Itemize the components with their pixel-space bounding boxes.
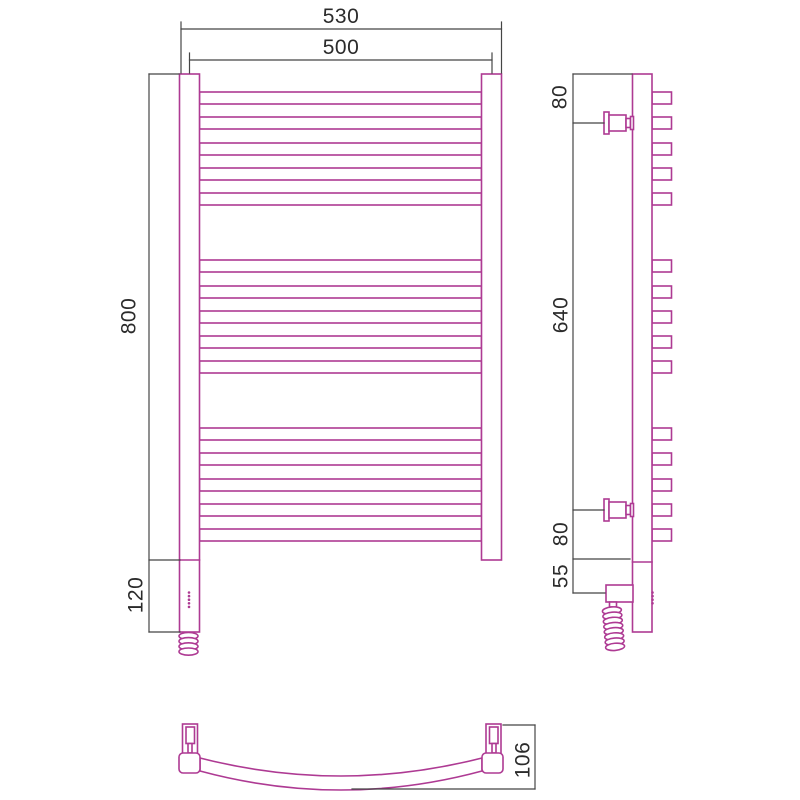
tube-rung xyxy=(200,193,482,205)
electric-unit-box xyxy=(606,585,633,602)
bracket-stem xyxy=(492,744,496,754)
tube-rung xyxy=(200,286,482,298)
bottom-right-bracket xyxy=(486,724,501,754)
led-dot xyxy=(651,595,654,598)
dim-label-500: 500 xyxy=(323,36,360,59)
side-post xyxy=(633,74,653,632)
bracket-barrel xyxy=(490,727,499,744)
technical-drawing: 530 500 800 120 xyxy=(0,0,800,800)
tube-stub xyxy=(652,311,672,323)
dim-label-55: 55 xyxy=(549,564,572,588)
tube-rung xyxy=(200,361,482,373)
tube-rung xyxy=(200,453,482,465)
tube-stub xyxy=(652,143,672,155)
dim-label-80-top: 80 xyxy=(548,85,571,109)
front-view: 530 500 800 120 xyxy=(117,5,501,655)
wall-bracket xyxy=(604,499,634,521)
power-cable-coil-front xyxy=(179,632,198,655)
coil-loop xyxy=(179,648,198,655)
drawing-canvas: 530 500 800 120 xyxy=(0,0,800,800)
side-view: 80 640 80 55 xyxy=(548,74,671,651)
tube-rung xyxy=(200,168,482,180)
tube-stub xyxy=(652,453,672,465)
dim-label-106: 106 xyxy=(511,742,534,779)
tube-stub xyxy=(652,193,672,205)
power-cable-coil-side xyxy=(602,606,625,651)
tube-stub xyxy=(652,529,672,541)
tube-stub xyxy=(652,168,672,180)
bracket-collar xyxy=(631,117,634,130)
front-right-post xyxy=(482,74,502,560)
tube-rung xyxy=(200,504,482,516)
tube-rung xyxy=(200,336,482,348)
tube-rung xyxy=(200,260,482,272)
front-left-post xyxy=(180,74,200,632)
curved-tube-arc xyxy=(200,758,482,790)
bottom-left-bracket xyxy=(183,724,198,754)
dim-label-80-bottom: 80 xyxy=(549,522,572,546)
tube-stub xyxy=(652,504,672,516)
tube-stub xyxy=(652,336,672,348)
tube-rung xyxy=(200,428,482,440)
led-dot xyxy=(651,602,654,605)
tube-stub xyxy=(652,92,672,104)
tube-rung xyxy=(200,479,482,491)
led-dot xyxy=(651,598,654,601)
tube-rung xyxy=(200,311,482,323)
tube-rung xyxy=(200,92,482,104)
tube-rung xyxy=(200,117,482,129)
dim-label-530: 530 xyxy=(323,5,360,28)
dim-label-120: 120 xyxy=(124,577,147,614)
tube-stub xyxy=(652,260,672,272)
led-dot xyxy=(651,591,654,594)
dim-label-800: 800 xyxy=(117,298,140,335)
bottom-view: 106 xyxy=(179,724,535,790)
bracket-collar xyxy=(631,504,634,517)
wall-brackets xyxy=(604,112,634,521)
led-dot xyxy=(188,598,191,601)
front-tubes xyxy=(200,92,482,541)
tube-stub xyxy=(652,286,672,298)
bracket-body xyxy=(609,115,626,131)
side-tube-stubs xyxy=(652,92,672,541)
led-dot xyxy=(188,602,191,605)
tube-stub xyxy=(652,361,672,373)
dim-label-640: 640 xyxy=(549,297,572,334)
led-dot xyxy=(188,595,191,598)
tube-stub xyxy=(652,428,672,440)
tube-rung xyxy=(200,529,482,541)
tube-stub xyxy=(652,479,672,491)
tube-rung xyxy=(200,143,482,155)
led-dot xyxy=(188,606,191,609)
bracket-body xyxy=(609,502,626,518)
wall-bracket xyxy=(604,112,634,134)
led-dot xyxy=(188,591,191,594)
bottom-left-post-section xyxy=(179,753,200,773)
bracket-barrel xyxy=(186,727,195,744)
bracket-stem xyxy=(188,744,192,754)
bottom-right-post-section xyxy=(482,753,503,773)
tube-stub xyxy=(652,117,672,129)
